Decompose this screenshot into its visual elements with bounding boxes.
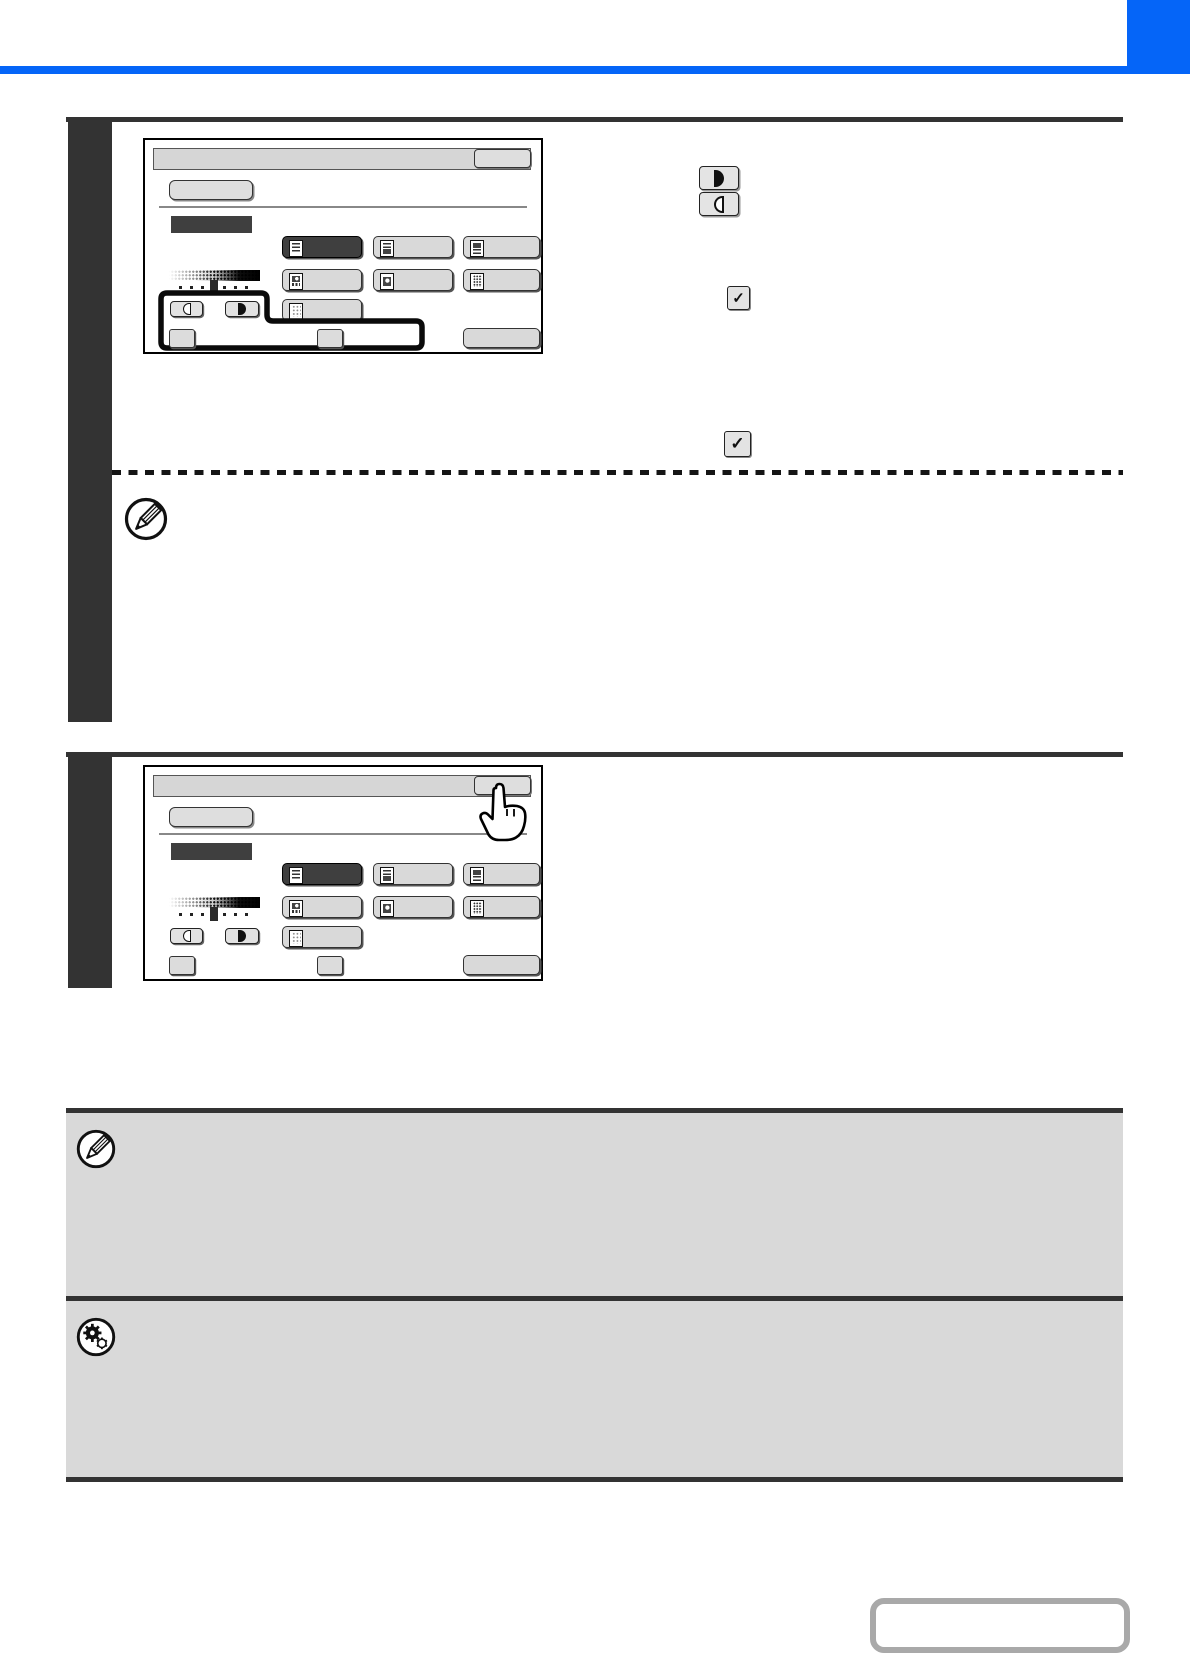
lighten-key-inline [699,192,739,216]
mode-button-text-original[interactable] [282,863,362,885]
touch-panel-screenshot-2 [143,765,543,981]
step2-number-bar [68,752,112,988]
mode-button-text-photo[interactable] [463,236,540,258]
manual-page: ✓ ✓ [0,0,1190,1656]
light-original-icon [289,303,303,320]
step2-rule [66,752,1123,757]
darken-key-inline [699,166,739,190]
header-rule [0,66,1190,74]
hand-cursor-icon [477,781,533,843]
mode-button-text-printed-photo[interactable] [373,236,453,258]
checkbox-key[interactable] [317,329,343,348]
exposure-level-indicator [210,280,218,294]
exposure-tick [223,913,226,916]
wide-key[interactable] [463,955,540,975]
exposure-tick [201,286,204,289]
lighten-key[interactable] [170,301,203,317]
exposure-tick [234,286,237,289]
registration-gear-icon [76,1317,116,1357]
settings-note-box [66,1296,1123,1482]
text-photo-icon [470,867,484,884]
exposure-tick [190,286,193,289]
text-original-icon [289,867,303,884]
exposure-tick [234,913,237,916]
exposure-level-indicator [210,907,218,921]
exposure-tick [223,286,226,289]
text-original-icon [289,240,303,257]
lighten-key[interactable] [170,928,203,944]
check-key-inline: ✓ [727,286,750,310]
lighten-half-circle-icon [714,196,724,213]
contents-button[interactable] [870,1598,1130,1653]
note-box [66,1108,1123,1296]
mode-button-light-original[interactable] [282,926,362,948]
mode-button-text-photo[interactable] [463,863,540,885]
darken-half-circle-icon [714,170,724,187]
mode-button-text-original[interactable] [282,236,362,258]
mode-button-light-original[interactable] [282,299,362,321]
text-photo-icon [470,240,484,257]
step1-rule [66,117,1123,122]
dashed-divider [112,470,1123,475]
step1-number-bar [68,117,112,722]
exposure-tick [201,913,204,916]
text-printed-photo-icon [380,867,394,884]
light-original-icon [289,930,303,947]
touch-panel-screenshot-1 [143,138,543,354]
exposure-scale [145,280,541,294]
checkbox-key[interactable] [317,956,343,975]
darken-key[interactable] [225,928,259,944]
exposure-tick [179,286,182,289]
darken-half-circle-icon [238,930,246,942]
lighten-half-circle-icon [183,303,191,315]
exposure-tick [179,913,182,916]
pencil-icon [76,1129,116,1169]
exposure-scale [145,907,541,921]
check-key-inline: ✓ [724,431,751,457]
exposure-tick [190,913,193,916]
exposure-tick [245,913,248,916]
mode-button-text-printed-photo[interactable] [373,863,453,885]
exposure-tick [245,286,248,289]
wide-key[interactable] [463,328,540,348]
text-printed-photo-icon [380,240,394,257]
darken-half-circle-icon [238,303,246,315]
lighten-half-circle-icon [183,930,191,942]
mode-button-grid [145,140,541,352]
darken-key[interactable] [225,301,259,317]
header-corner-block [1127,0,1190,74]
checkbox-key[interactable] [169,956,195,975]
checkbox-key[interactable] [169,329,195,348]
pencil-icon [124,497,168,541]
